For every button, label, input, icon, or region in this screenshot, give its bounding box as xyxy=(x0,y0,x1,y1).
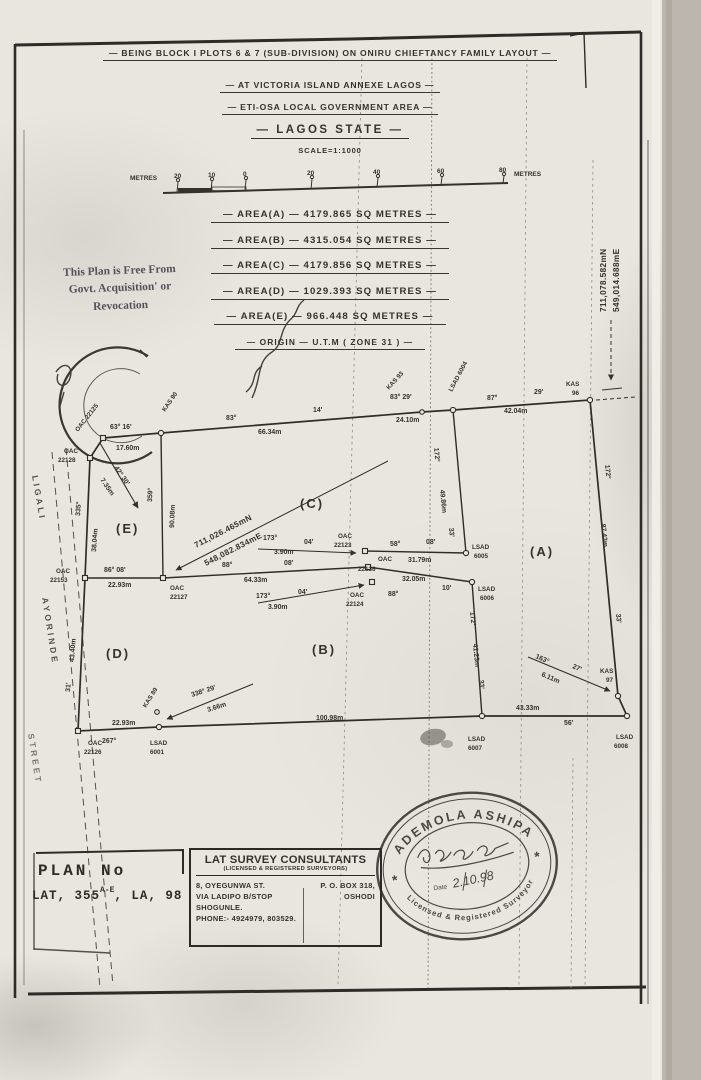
survey-firm-phone: PHONE:- 4924979, 803529. xyxy=(196,913,375,924)
svg-text:OAC: OAC xyxy=(56,568,70,575)
bearing-label: 173° xyxy=(263,534,277,542)
beacon-marker xyxy=(363,549,368,554)
beacon-marker xyxy=(615,693,620,698)
distance-label: 6.11m xyxy=(540,671,560,685)
bearing-label: 31' xyxy=(65,682,73,692)
svg-text:22124: 22124 xyxy=(346,601,364,608)
distance-label: 3.66m xyxy=(206,701,227,714)
ink-smudges xyxy=(419,726,453,748)
bearing-label: 10' xyxy=(442,585,452,592)
stamp-date: 2.10.98 xyxy=(450,868,495,891)
plot-label-c: (C) xyxy=(300,496,324,511)
distance-label: 24.10m xyxy=(396,417,419,424)
plan-number-suffix: A-E xyxy=(100,886,114,895)
bearing-label: 27' xyxy=(571,663,583,673)
title-line-4: — LAGOS STATE — xyxy=(20,124,640,139)
distance-label: 87.43m xyxy=(599,523,608,547)
svg-text:6008: 6008 xyxy=(614,743,629,750)
bearing-label: 83° 29' xyxy=(390,393,412,401)
distance-label: 17.60m xyxy=(116,445,139,452)
distance-label: 64.33m xyxy=(244,577,267,584)
bearing-label: 172° xyxy=(432,447,441,462)
street-name-word: AYORINDE xyxy=(40,597,61,666)
street-name: LIGALI AYORINDE STREET xyxy=(26,475,61,786)
beacon-marker xyxy=(450,407,455,412)
svg-text:22153: 22153 xyxy=(50,577,68,584)
plot-label-b: (B) xyxy=(312,642,336,657)
bearing-label: 173° xyxy=(256,592,270,600)
svg-text:6001: 6001 xyxy=(150,749,165,756)
scalebar-tick: 20 xyxy=(307,170,315,177)
bearing-label: 58° xyxy=(390,540,401,548)
survey-firm-pobox: P. O. BOX 318, xyxy=(320,880,375,891)
svg-text:OAC: OAC xyxy=(64,448,78,455)
svg-text:LSAD: LSAD xyxy=(472,544,490,551)
beacon-label: KAS 93 xyxy=(385,370,405,391)
survey-firm-address: SHOGUNLE. xyxy=(196,902,375,913)
survey-firm-name: LAT SURVEY CONSULTANTS xyxy=(196,854,375,866)
beacon-marker xyxy=(587,397,592,402)
beacon-label: OAC22128 xyxy=(58,448,78,464)
beacon-label: OAC22124 xyxy=(346,592,364,608)
scale-text: SCALE=1:1000 xyxy=(20,146,640,157)
origin-note: — ORIGIN — U.T.M ( ZONE 31 ) — xyxy=(20,332,640,358)
svg-text:LSAD: LSAD xyxy=(616,734,634,741)
bearing-label: 08' xyxy=(284,560,294,567)
distance-label: 38.04m xyxy=(91,528,100,552)
plan-number-title: PLAN No xyxy=(38,862,188,880)
distance-label: 43.33m xyxy=(516,705,539,712)
survey-firm-subtitle: (LICENSED & REGISTERED SURVEYORS) xyxy=(196,866,375,876)
distance-label: 42.04m xyxy=(504,408,527,415)
stamp-date-label: Date xyxy=(433,884,448,893)
svg-text:6005: 6005 xyxy=(474,553,489,560)
surveyor-stamp: ADEMOLA ASHIPA Licensed & Registered Sur… xyxy=(369,783,565,950)
svg-text:97: 97 xyxy=(606,677,614,684)
beacon-label: OAC22123 xyxy=(334,533,352,549)
svg-text:OAC: OAC xyxy=(338,533,352,540)
distance-label: 32.05m xyxy=(402,576,425,583)
survey-firm-address: VIA LADIPO B/STOP xyxy=(196,891,273,902)
bearing-label: 63° 16' xyxy=(110,423,132,431)
title-line-3: — ETI-OSA LOCAL GOVERNMENT AREA — xyxy=(20,102,640,115)
plan-number-box: PLAN No LAT, 355A-E, LA, 98 xyxy=(32,854,188,903)
bearing-label: 172° xyxy=(603,464,612,479)
beacon-marker xyxy=(101,436,106,441)
distance-label: 100.98m xyxy=(316,715,343,722)
distance-label: 22.93m xyxy=(108,582,131,589)
bearing-label: 83° xyxy=(226,414,237,422)
title-line-2: — AT VICTORIA ISLAND ANNEXE LAGOS — xyxy=(20,80,640,93)
svg-text:OAC: OAC xyxy=(378,556,392,563)
street-name-word: STREET xyxy=(26,733,44,785)
svg-text:OAC: OAC xyxy=(88,740,102,747)
survey-firm-address: 8, OYEGUNWA ST. xyxy=(196,880,265,891)
bearing-label: 359° xyxy=(146,487,155,502)
distance-label: 43.40m xyxy=(69,638,78,662)
svg-text:KAS: KAS xyxy=(566,381,579,388)
beacon-label: KAS96 xyxy=(566,381,580,397)
bearing-label: 04' xyxy=(304,539,314,546)
distance-label: 22.93m xyxy=(112,720,135,727)
stamp-star-left: * xyxy=(391,872,399,889)
beacon-label: LSAD6001 xyxy=(150,740,168,756)
beacon-marker xyxy=(155,710,160,715)
beacon-label: LSAD6008 xyxy=(614,734,634,750)
beacon-marker xyxy=(420,410,425,415)
plot-label-e: (E) xyxy=(116,521,139,536)
bearing-label: 163° xyxy=(534,652,550,665)
plan-number-value: LAT, 355A-E, LA, 98 xyxy=(32,886,188,903)
beacon-marker xyxy=(161,576,166,581)
street-name-word: LIGALI xyxy=(30,475,48,522)
beacon-label: OAC 22125 xyxy=(74,402,100,433)
beacon-marker xyxy=(76,729,81,734)
beacon-label: OAC22127 xyxy=(170,585,188,601)
svg-text:22123: 22123 xyxy=(334,542,352,549)
distance-label: 41.23m xyxy=(471,643,480,667)
bearing-label: 04' xyxy=(298,589,308,596)
scale-bar: METRES 20 10 0 20 40 60 80 METRES xyxy=(130,167,542,193)
scalebar-unit-left: METRES xyxy=(130,175,158,182)
bearing-label: 335° xyxy=(74,501,83,516)
svg-text:22126: 22126 xyxy=(84,749,102,756)
bearing-label: 87° xyxy=(487,394,498,402)
distance-label: 3.90m xyxy=(268,604,288,611)
svg-text:LSAD: LSAD xyxy=(468,736,486,743)
bearing-label: 33' xyxy=(614,613,622,623)
bearing-label: 33' xyxy=(447,527,455,537)
bearing-label: 267° xyxy=(102,737,116,745)
beacon-marker xyxy=(463,550,468,555)
title-line-1: — BEING BLOCK I PLOTS 6 & 7 (SUB-DIVISIO… xyxy=(20,48,640,61)
dimension-labels: 63° 16' 17.60m 83° 14' 66.34m 83° 29' 24… xyxy=(65,389,622,745)
acquisition-note: This Plan is Free From Govt. Acquisition… xyxy=(23,260,217,318)
plot-label-d: (D) xyxy=(106,646,130,661)
survey-plan-sheet: METRES 20 10 0 20 40 60 80 METRES xyxy=(0,0,701,1080)
beacon-marker xyxy=(370,580,375,585)
distance-label: 66.34m xyxy=(258,429,281,436)
bearing-label: 56' xyxy=(564,720,574,727)
bearing-label: 33' xyxy=(477,679,485,689)
bearing-label: 29' xyxy=(534,389,544,396)
area-b: — AREA(B) — 4315.054 SQ METRES — xyxy=(20,230,640,256)
plot-label-a: (A) xyxy=(530,544,554,559)
bearing-label: 42° 30' xyxy=(112,465,131,488)
svg-text:6007: 6007 xyxy=(468,745,483,752)
box-divider xyxy=(303,888,304,943)
distance-label: 90.08m xyxy=(169,504,177,528)
beacon-label: OAC22153 xyxy=(50,568,70,584)
svg-text:22128: 22128 xyxy=(58,457,76,464)
beacon-label: LSAD6006 xyxy=(478,586,496,602)
bearing-label: 08' xyxy=(426,539,436,546)
bearing-label: 172° xyxy=(468,611,477,626)
svg-text:OAC: OAC xyxy=(170,585,184,592)
beacon-markers xyxy=(76,397,630,733)
survey-firm-address: OSHODI xyxy=(344,891,375,902)
beacon-marker xyxy=(479,713,484,718)
scalebar-tick: 0 xyxy=(243,171,247,178)
svg-text:22127: 22127 xyxy=(170,594,188,601)
beacon-label: KAS97 xyxy=(600,668,614,684)
scalebar-tick: 40 xyxy=(373,169,381,176)
beacon-label: LSAD6005 xyxy=(472,544,490,560)
beacon-marker xyxy=(83,576,88,581)
stamp-name: ADEMOLA ASHIPA xyxy=(387,799,538,858)
svg-text:LSAD: LSAD xyxy=(478,586,496,593)
svg-text:OAC: OAC xyxy=(350,592,364,599)
svg-text:22136: 22136 xyxy=(358,566,376,573)
distance-label: 49.86m xyxy=(438,489,447,513)
distance-label: 7.35m xyxy=(98,477,115,497)
beacon-label: LSAD 6004 xyxy=(448,360,470,393)
bearing-label: 88° xyxy=(388,590,399,598)
stamp-star-right: * xyxy=(533,848,541,865)
svg-text:KAS: KAS xyxy=(600,668,613,675)
beacon-marker xyxy=(469,579,474,584)
scan-margins xyxy=(652,0,701,1080)
distance-label: 31.79m xyxy=(408,557,431,564)
bearing-label: 338° 29' xyxy=(190,683,217,699)
scalebar-tick: 20 xyxy=(174,173,182,180)
beacon-marker xyxy=(156,724,161,729)
beacon-marker xyxy=(88,456,93,461)
beacon-marker xyxy=(158,430,163,435)
beacon-marker xyxy=(624,713,629,718)
survey-firm-box: LAT SURVEY CONSULTANTS (LICENSED & REGIS… xyxy=(189,848,382,947)
bearing-label: 88° xyxy=(222,561,233,569)
scalebar-tick: 60 xyxy=(437,168,445,175)
svg-text:96: 96 xyxy=(572,390,580,397)
svg-text:6006: 6006 xyxy=(480,595,495,602)
area-a: — AREA(A) — 4179.865 SQ METRES — xyxy=(20,204,640,230)
scalebar-tick: 10 xyxy=(208,172,216,179)
beacon-label: KAS 90 xyxy=(161,391,180,413)
distance-label: 3.90m xyxy=(274,549,294,556)
beacon-label: KAS 89 xyxy=(142,686,160,709)
bearing-label: 86° 08' xyxy=(104,566,126,574)
beacon-label: OAC22126 xyxy=(84,740,102,756)
svg-text:LSAD: LSAD xyxy=(150,740,168,747)
scalebar-tick: 80 xyxy=(499,167,507,174)
scalebar-unit-right: METRES xyxy=(514,171,542,178)
bearing-label: 14' xyxy=(313,407,323,414)
beacon-label: LSAD6007 xyxy=(468,736,486,752)
